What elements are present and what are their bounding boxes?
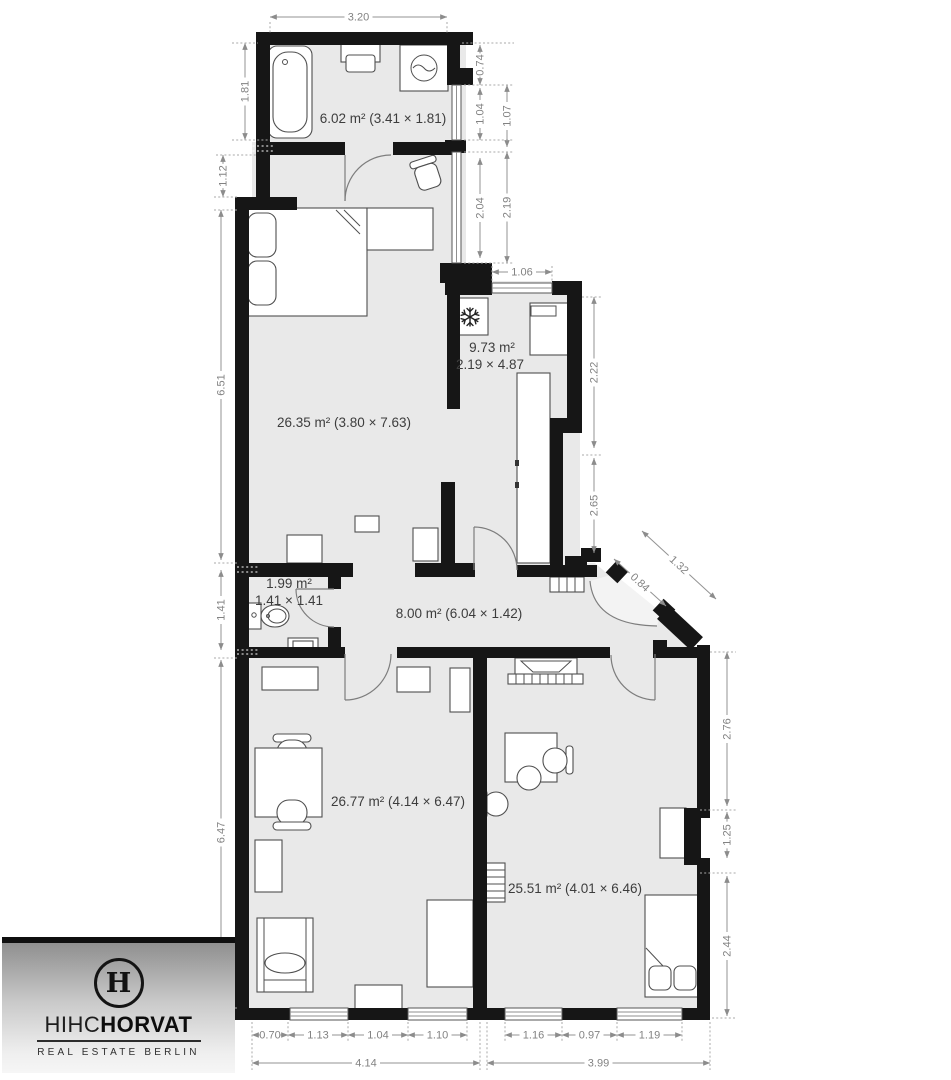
bedroom-label: 26.35 m² (3.80 × 7.63) bbox=[277, 415, 411, 430]
desk bbox=[367, 208, 433, 250]
dimension-label: 1.16 bbox=[523, 1030, 544, 1042]
dimension-label: 1.10 bbox=[427, 1030, 448, 1042]
kitchen-area-label: 9.73 m² bbox=[469, 340, 515, 355]
dimension-line bbox=[689, 574, 716, 599]
dimension-label: 1.13 bbox=[307, 1030, 328, 1042]
cabinet bbox=[397, 667, 430, 692]
agency-logo: H HIHCHORVAT REAL ESTATE BERLIN bbox=[2, 937, 235, 1073]
shelf-cabinet bbox=[660, 808, 686, 858]
logo-monogram-icon: H bbox=[94, 958, 144, 1008]
washbasin bbox=[341, 44, 380, 72]
dimension-label: 0.74 bbox=[475, 54, 487, 75]
pillow bbox=[674, 966, 696, 990]
pillow bbox=[265, 953, 305, 973]
dimension-label: 3.99 bbox=[588, 1058, 609, 1070]
kitchen-counter bbox=[515, 373, 550, 563]
dresser bbox=[355, 985, 402, 1009]
wc-area-label: 1.99 m² bbox=[266, 576, 312, 591]
dimension-label: 1.41 bbox=[216, 599, 228, 620]
cabinet bbox=[287, 535, 322, 563]
chair bbox=[277, 800, 307, 825]
logo-name-light: HIHC bbox=[44, 1012, 100, 1037]
dimension-label: 1.12 bbox=[218, 165, 230, 186]
dimension-label: 0.70 bbox=[259, 1030, 280, 1042]
pillow bbox=[248, 213, 276, 257]
pillow bbox=[649, 966, 671, 990]
bedroom2-label: 25.51 m² (4.01 × 6.46) bbox=[508, 881, 642, 896]
dimension-line bbox=[642, 531, 669, 556]
window bbox=[408, 1008, 467, 1020]
single-bed bbox=[257, 918, 313, 992]
dimension-label: 2.04 bbox=[475, 197, 487, 218]
chair bbox=[273, 822, 311, 830]
dimension-label: 0.97 bbox=[579, 1030, 600, 1042]
dimension-label: 1.19 bbox=[639, 1030, 660, 1042]
pillow bbox=[248, 261, 276, 305]
dining-table-with-chairs bbox=[255, 734, 322, 830]
bathroom-label: 6.02 m² (3.41 × 1.81) bbox=[320, 111, 446, 126]
hallway-label: 8.00 m² (6.04 × 1.42) bbox=[396, 606, 522, 621]
dimension-label: 1.32 bbox=[667, 554, 691, 577]
logo-name: HIHCHORVAT bbox=[44, 1014, 192, 1036]
double-bed-2 bbox=[645, 895, 700, 997]
bookshelf bbox=[485, 863, 505, 902]
floor-areas bbox=[235, 40, 710, 1020]
cabinet bbox=[413, 528, 438, 561]
kitchen-table bbox=[530, 303, 568, 355]
washing-machine bbox=[400, 45, 448, 91]
window bbox=[492, 283, 552, 293]
tall-cabinet bbox=[450, 668, 470, 712]
wardrobe bbox=[427, 900, 473, 987]
dimension-label: 2.65 bbox=[589, 495, 601, 516]
dimension-label: 1.25 bbox=[722, 824, 734, 845]
dimension-label: 4.14 bbox=[355, 1058, 376, 1070]
cabinet bbox=[355, 516, 379, 532]
logo-name-bold: HORVAT bbox=[100, 1012, 192, 1037]
double-bed bbox=[243, 208, 367, 316]
chair bbox=[517, 766, 541, 790]
window bbox=[617, 1008, 682, 1020]
dimension-label: 6.47 bbox=[216, 822, 228, 843]
logo-tagline: REAL ESTATE BERLIN bbox=[37, 1047, 199, 1058]
piano bbox=[508, 658, 583, 684]
dimension-label: 2.19 bbox=[502, 197, 514, 218]
dimension-label: 1.07 bbox=[502, 105, 514, 126]
dimension-label: 1.04 bbox=[475, 103, 487, 124]
dimension-label: 2.22 bbox=[589, 362, 601, 383]
window bbox=[290, 1008, 348, 1020]
floorplan-page: 6.02 m² (3.41 × 1.81) 26.35 m² (3.80 × 7… bbox=[0, 0, 951, 1080]
sideboard bbox=[262, 667, 318, 690]
window bbox=[505, 1008, 562, 1020]
living-room-label: 26.77 m² (4.14 × 6.47) bbox=[331, 794, 465, 809]
window bbox=[452, 152, 461, 263]
kitchen-size-label: 2.19 × 4.87 bbox=[456, 357, 524, 372]
floorplan-canvas: 6.02 m² (3.41 × 1.81) 26.35 m² (3.80 × 7… bbox=[0, 0, 951, 1080]
logo-monogram-letter: H bbox=[106, 968, 132, 999]
radiator bbox=[550, 577, 584, 592]
sideboard bbox=[255, 840, 282, 892]
chair bbox=[543, 748, 567, 773]
logo-divider bbox=[37, 1040, 201, 1042]
dimension-label: 2.76 bbox=[722, 718, 734, 739]
window bbox=[452, 85, 461, 140]
wc-size-label: 1.41 × 1.41 bbox=[255, 593, 323, 608]
dimension-label: 2.44 bbox=[722, 935, 734, 956]
dimension-label: 1.06 bbox=[511, 267, 532, 279]
dimension-label: 1.04 bbox=[367, 1030, 388, 1042]
wall-niche bbox=[701, 818, 710, 858]
dimension-label: 1.81 bbox=[240, 81, 252, 102]
dimension-label: 6.51 bbox=[216, 374, 228, 395]
chair bbox=[484, 792, 508, 816]
dimension-label: 3.20 bbox=[348, 12, 369, 24]
bathtub bbox=[268, 46, 312, 138]
